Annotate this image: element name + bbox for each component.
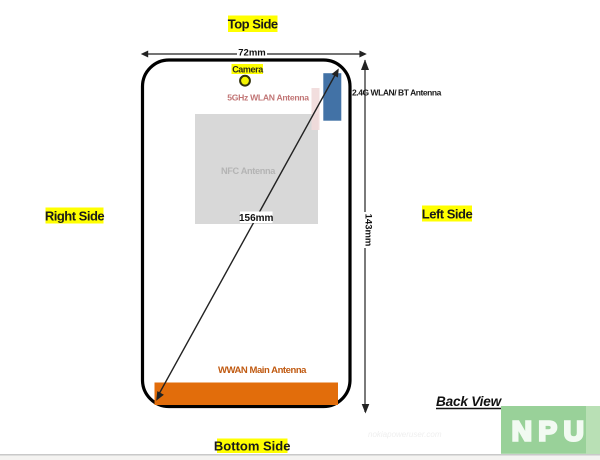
- svg-text:Back View: Back View: [436, 394, 503, 409]
- svg-text:Bottom Side: Bottom Side: [214, 439, 291, 454]
- svg-text:Top Side: Top Side: [228, 17, 278, 32]
- svg-text:Camera: Camera: [232, 64, 264, 74]
- svg-text:72mm: 72mm: [238, 48, 265, 59]
- svg-text:NFC Antenna: NFC Antenna: [221, 166, 276, 176]
- svg-text:NPU: NPU: [512, 416, 591, 447]
- svg-text:Right Side: Right Side: [45, 209, 105, 224]
- svg-text:156mm: 156mm: [239, 213, 274, 224]
- svg-text:WWAN Main Antenna: WWAN Main Antenna: [218, 365, 307, 376]
- svg-text:5GHz WLAN Antenna: 5GHz WLAN Antenna: [227, 93, 309, 103]
- svg-text:Left Side: Left Side: [422, 207, 473, 222]
- svg-text:2.4G WLAN/ BT Antenna: 2.4G WLAN/ BT Antenna: [352, 88, 442, 98]
- svg-text:143mm: 143mm: [363, 214, 374, 247]
- svg-text:nokiapoweruser.com: nokiapoweruser.com: [368, 430, 442, 439]
